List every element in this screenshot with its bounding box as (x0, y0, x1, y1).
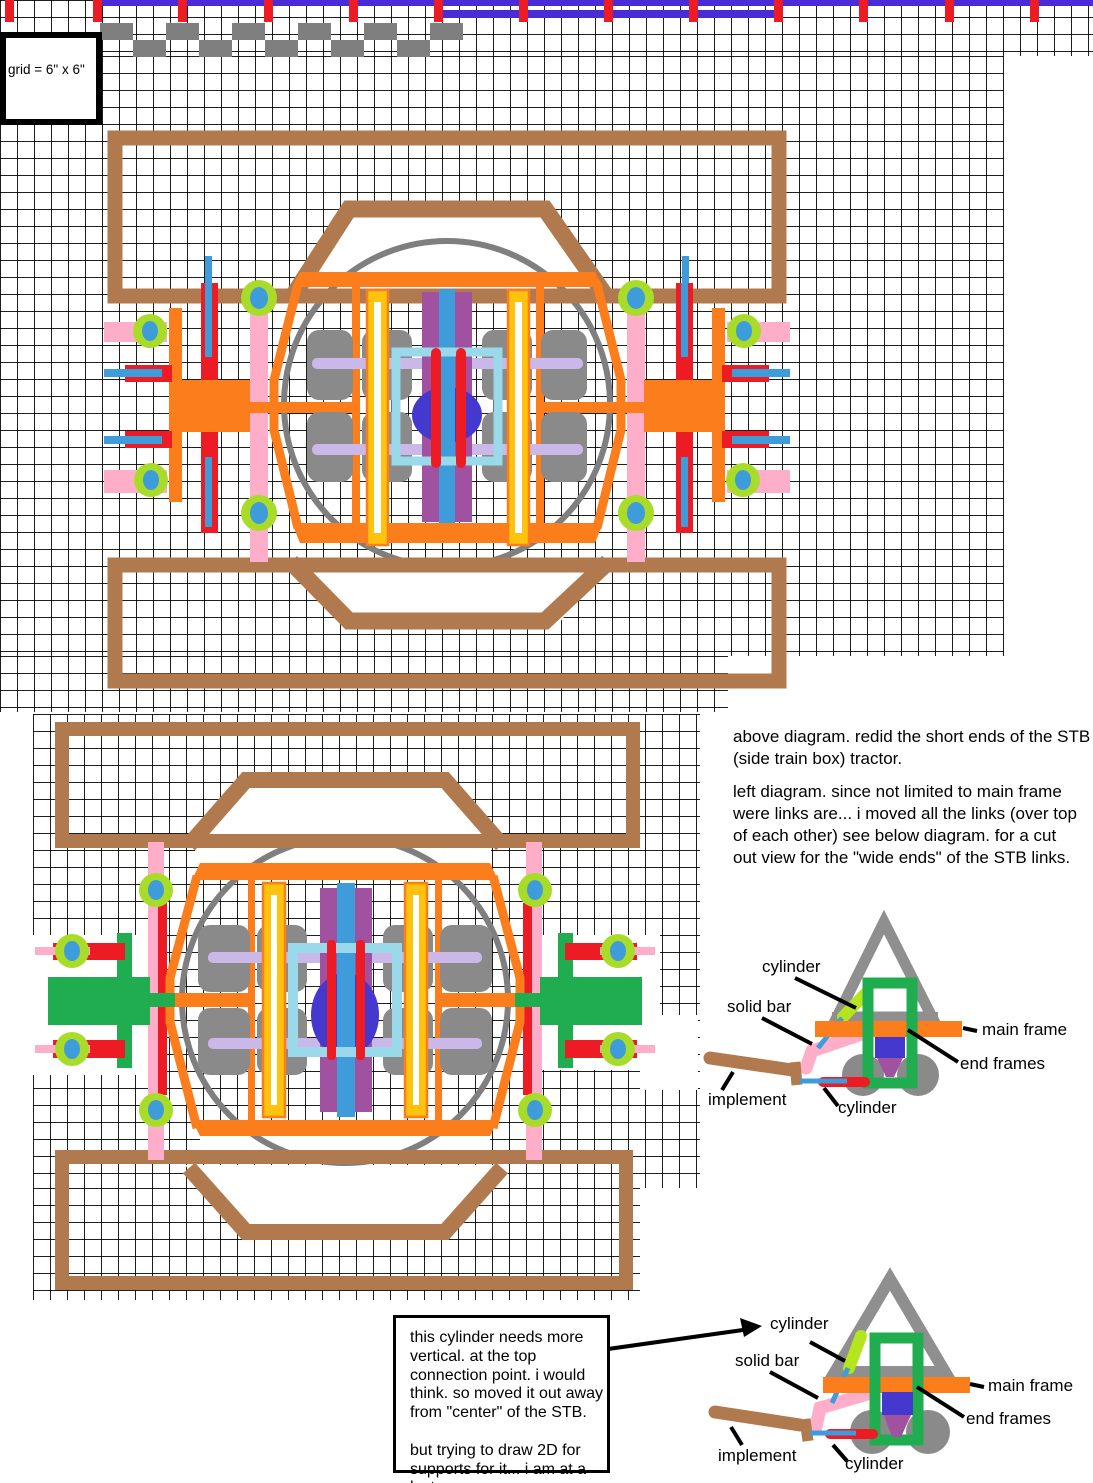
label-main-frame-2: main frame (988, 1376, 1073, 1396)
label-cylinder-top-2: cylinder (770, 1314, 829, 1334)
label-solid-bar-2: solid bar (735, 1351, 799, 1371)
label-implement-2: implement (718, 1446, 796, 1466)
label-cylinder-top-1: cylinder (762, 957, 821, 977)
label-implement-1: implement (708, 1090, 786, 1110)
top-diagram-center (307, 289, 587, 545)
label-end-frames-1: end frames (960, 1054, 1045, 1074)
label-end-frames-2: end frames (966, 1409, 1051, 1429)
note-left-diagram: left diagram. since not limited to main … (733, 781, 1093, 869)
paint-drawing-canvas: grid = 6" x 6" (0, 0, 1093, 1483)
label-cylinder-bottom-2: cylinder (845, 1454, 904, 1474)
implement-bar (715, 1412, 800, 1425)
label-solid-bar-1: solid bar (727, 997, 791, 1017)
center-shaft (439, 289, 455, 523)
main-frame-bar (815, 1021, 962, 1037)
label-main-frame-1: main frame (982, 1020, 1067, 1040)
center-shaft (337, 883, 355, 1117)
callout-arrow (608, 1318, 762, 1349)
callout-box: this cylinder needs more vertical. at th… (393, 1315, 610, 1473)
grid-legend-label: grid = 6" x 6" (8, 62, 85, 77)
note-above-diagram: above diagram. redid the short ends of t… (733, 726, 1093, 770)
label-cylinder-bottom-1: cylinder (838, 1098, 897, 1118)
grid-legend-box: grid = 6" x 6" (0, 32, 102, 125)
implement-bar (710, 1058, 792, 1070)
main-frame-bar (823, 1377, 970, 1393)
callout-text: this cylinder needs more vertical. at th… (410, 1329, 607, 1483)
